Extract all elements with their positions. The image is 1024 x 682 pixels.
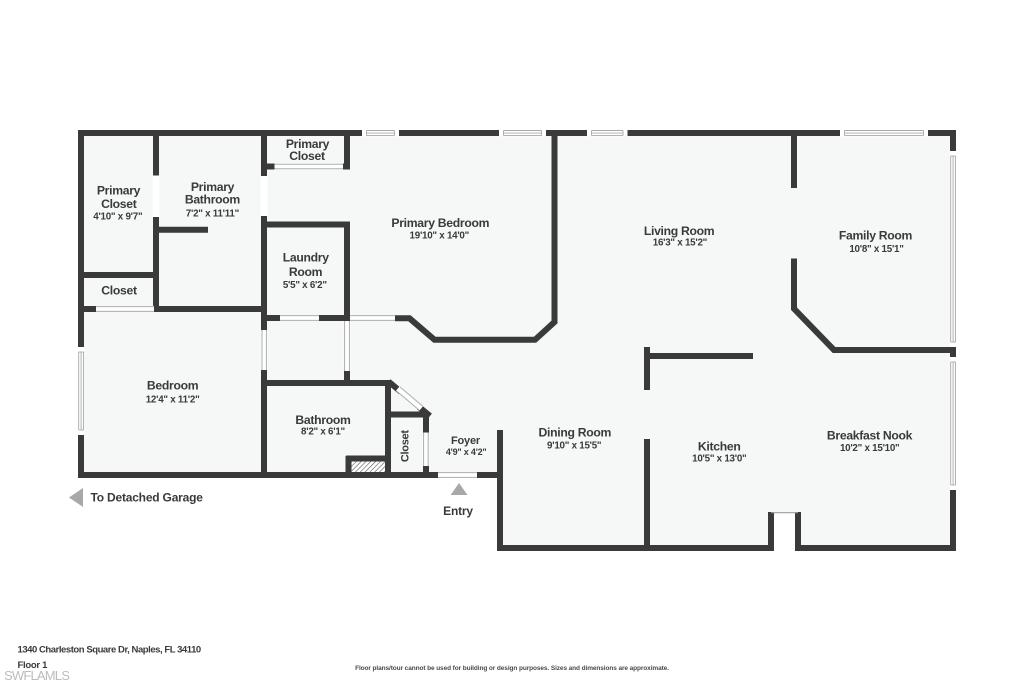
svg-text:5'5" x 6'2": 5'5" x 6'2" <box>283 280 327 291</box>
svg-text:Primary Bedroom: Primary Bedroom <box>391 216 489 230</box>
svg-text:Closet: Closet <box>101 284 137 298</box>
svg-text:Closet: Closet <box>289 149 325 163</box>
svg-text:Floor plans/tour cannot be use: Floor plans/tour cannot be used for buil… <box>355 665 669 672</box>
svg-text:Living Room: Living Room <box>644 224 715 238</box>
svg-text:19'10" x 14'0": 19'10" x 14'0" <box>410 230 469 241</box>
svg-text:Laundry: Laundry <box>283 251 329 265</box>
svg-text:Breakfast Nook: Breakfast Nook <box>827 429 913 443</box>
svg-text:Bathroom: Bathroom <box>185 193 241 207</box>
svg-text:Foyer: Foyer <box>451 435 481 447</box>
svg-text:Primary: Primary <box>97 183 141 197</box>
svg-text:Kitchen: Kitchen <box>698 440 741 454</box>
svg-text:4'10" x 9'7": 4'10" x 9'7" <box>93 212 142 223</box>
svg-text:To Detached Garage: To Detached Garage <box>91 491 204 505</box>
svg-text:12'4" x 11'2": 12'4" x 11'2" <box>146 394 200 405</box>
svg-text:10'5" x 13'0": 10'5" x 13'0" <box>692 454 746 465</box>
svg-text:10'2" x 15'10": 10'2" x 15'10" <box>840 443 899 454</box>
svg-text:4'9" x 4'2": 4'9" x 4'2" <box>446 447 487 457</box>
svg-text:10'8" x 15'1": 10'8" x 15'1" <box>849 244 903 255</box>
svg-text:8'2" x 6'1": 8'2" x 6'1" <box>301 427 345 438</box>
svg-text:Entry: Entry <box>443 504 473 518</box>
svg-text:SWFLAMLS: SWFLAMLS <box>4 668 70 682</box>
svg-text:16'3" x 15'2": 16'3" x 15'2" <box>653 238 707 249</box>
svg-text:7'2" x 11'11": 7'2" x 11'11" <box>186 209 239 220</box>
svg-text:9'10" x 15'5": 9'10" x 15'5" <box>547 441 601 452</box>
svg-text:Room: Room <box>289 265 323 279</box>
svg-text:1340 Charleston Square Dr, Nap: 1340 Charleston Square Dr, Naples, FL 34… <box>18 644 201 655</box>
svg-text:Family Room: Family Room <box>839 228 913 242</box>
svg-text:Bathroom: Bathroom <box>295 413 351 427</box>
svg-text:Dining Room: Dining Room <box>539 426 612 440</box>
svg-text:Closet: Closet <box>101 197 137 211</box>
svg-text:Closet: Closet <box>400 430 412 462</box>
svg-text:Bedroom: Bedroom <box>147 379 199 393</box>
